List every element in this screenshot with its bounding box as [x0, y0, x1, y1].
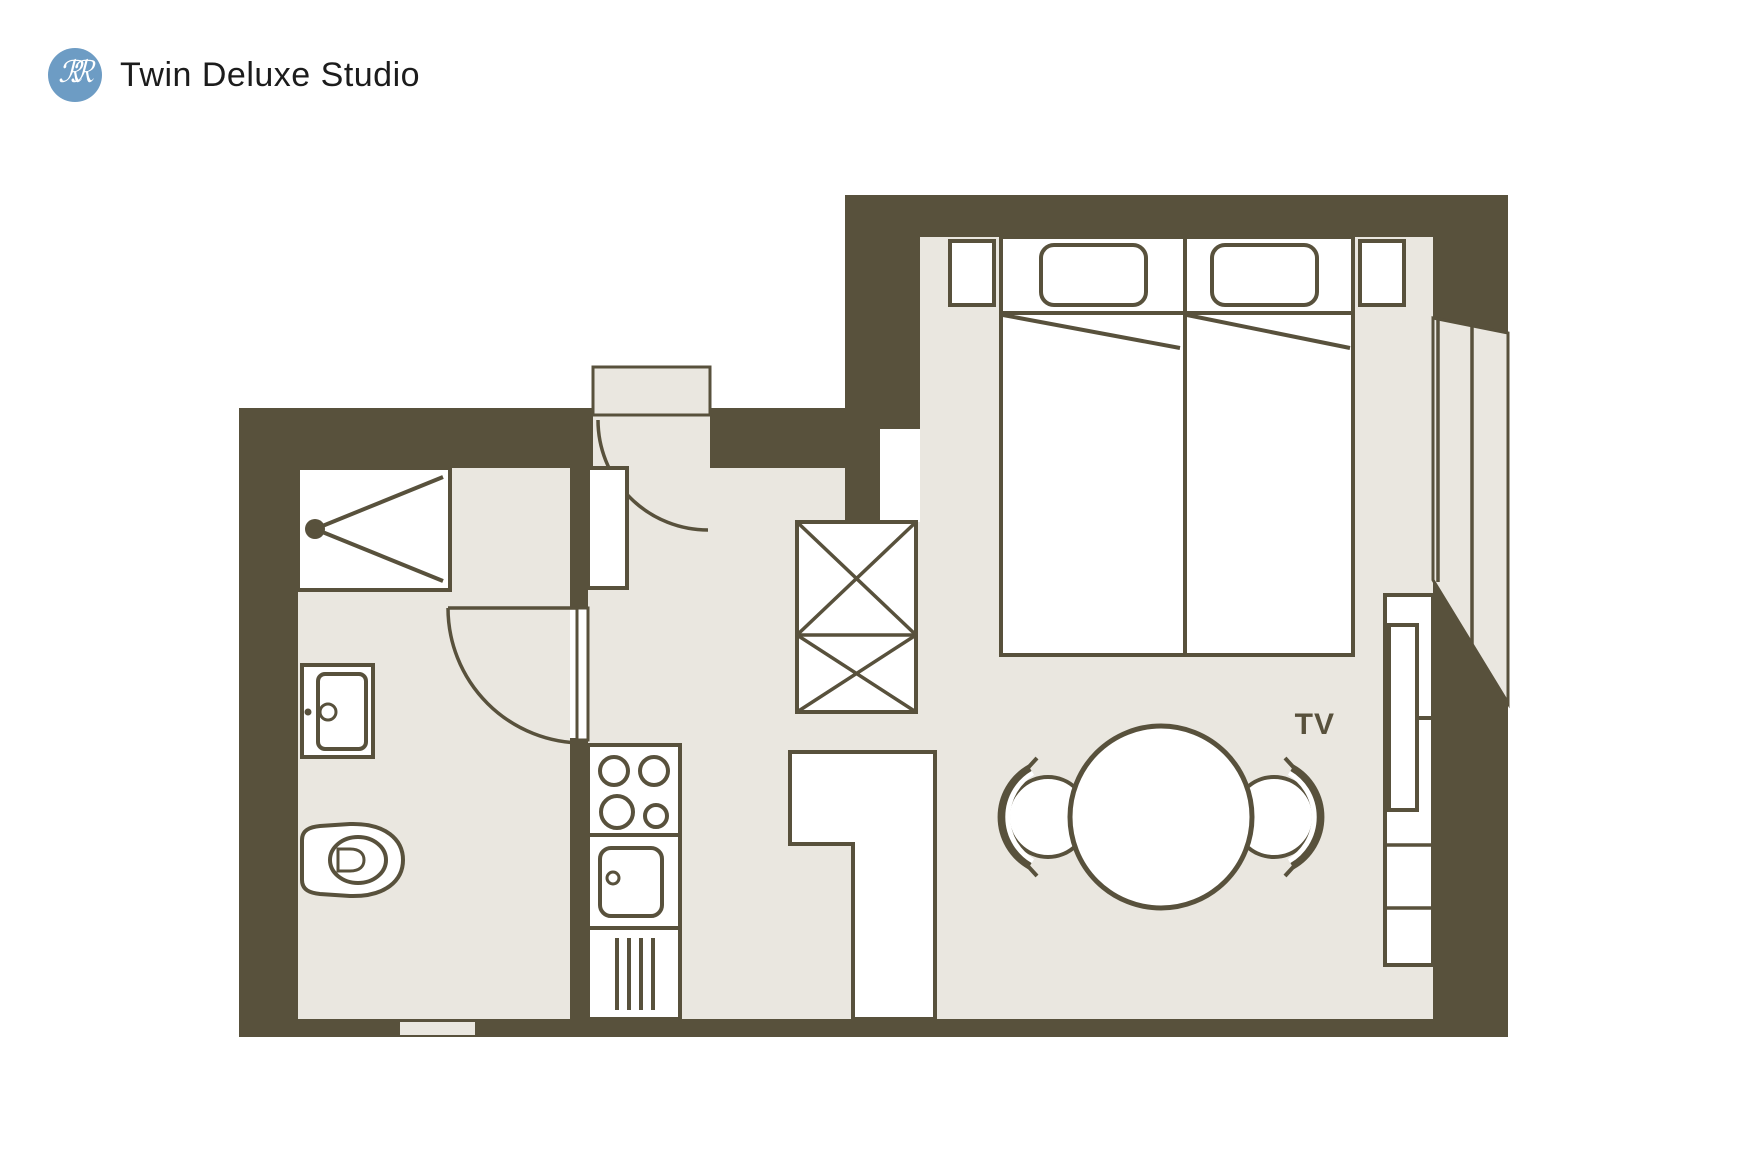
- bathroom-sink: [302, 665, 373, 757]
- right-wall-upper: [1433, 237, 1508, 333]
- burner-icon: [601, 796, 633, 828]
- step-wall-slot: [880, 429, 920, 522]
- sink-tap-icon: [305, 709, 312, 716]
- top-wall-left-b: [710, 408, 845, 468]
- screenshot-root: ℛℛ Twin Deluxe Studio: [0, 0, 1754, 1169]
- interior-wall-upper: [570, 468, 588, 608]
- burner-icon: [600, 757, 628, 785]
- round-table: [1070, 726, 1252, 908]
- burner-icon: [640, 757, 668, 785]
- top-wall-bedroom: [845, 195, 1508, 237]
- burner-icon: [645, 805, 667, 827]
- toilet: [302, 824, 403, 896]
- entry-threshold: [593, 367, 710, 415]
- tv-screen: [1389, 625, 1417, 810]
- kitchen-sink-drain-icon: [607, 872, 619, 884]
- wardrobe-crossed: [797, 522, 916, 712]
- stove: [588, 745, 680, 835]
- twin-beds: [950, 237, 1404, 655]
- bathroom-door-leaf: [577, 608, 588, 740]
- dishwasher-body: [588, 928, 680, 1019]
- nightstand-left: [950, 241, 994, 305]
- tv-label: TV: [1295, 708, 1335, 741]
- pillow-left: [1041, 245, 1146, 305]
- shower-drain-icon: [305, 519, 325, 539]
- tall-cabinet: [588, 468, 627, 588]
- shower: [298, 468, 450, 590]
- kitchen-sink: [588, 835, 680, 928]
- dishwasher: [588, 928, 680, 1019]
- left-wall: [239, 408, 298, 1037]
- floor-plan: TV: [0, 0, 1754, 1169]
- entry-opening-floor: [593, 415, 710, 468]
- pillow-right: [1212, 245, 1317, 305]
- top-wall-left-a: [239, 408, 593, 468]
- interior-wall-lower: [570, 738, 588, 1019]
- bottom-wall-threshold: [400, 1022, 475, 1035]
- nightstand-right: [1360, 241, 1404, 305]
- sink-drain-icon: [320, 704, 336, 720]
- toilet-flush: [338, 849, 364, 871]
